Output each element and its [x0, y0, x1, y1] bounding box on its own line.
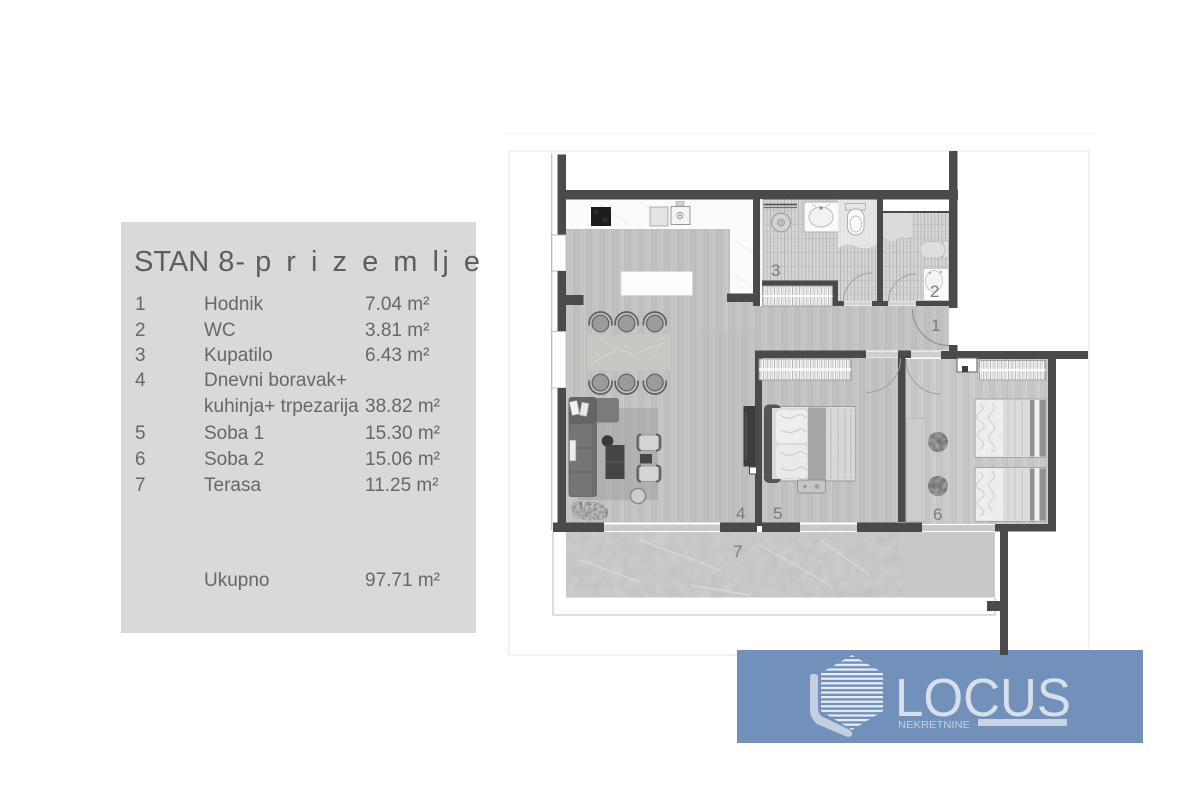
- svg-text:7: 7: [733, 542, 742, 561]
- svg-text:2: 2: [930, 282, 939, 301]
- svg-text:NEKRETNINE: NEKRETNINE: [898, 720, 970, 731]
- svg-text:6: 6: [933, 505, 942, 524]
- svg-text:4: 4: [736, 504, 745, 523]
- svg-text:5: 5: [773, 504, 782, 523]
- svg-text:3: 3: [771, 261, 780, 280]
- svg-text:1: 1: [931, 316, 940, 335]
